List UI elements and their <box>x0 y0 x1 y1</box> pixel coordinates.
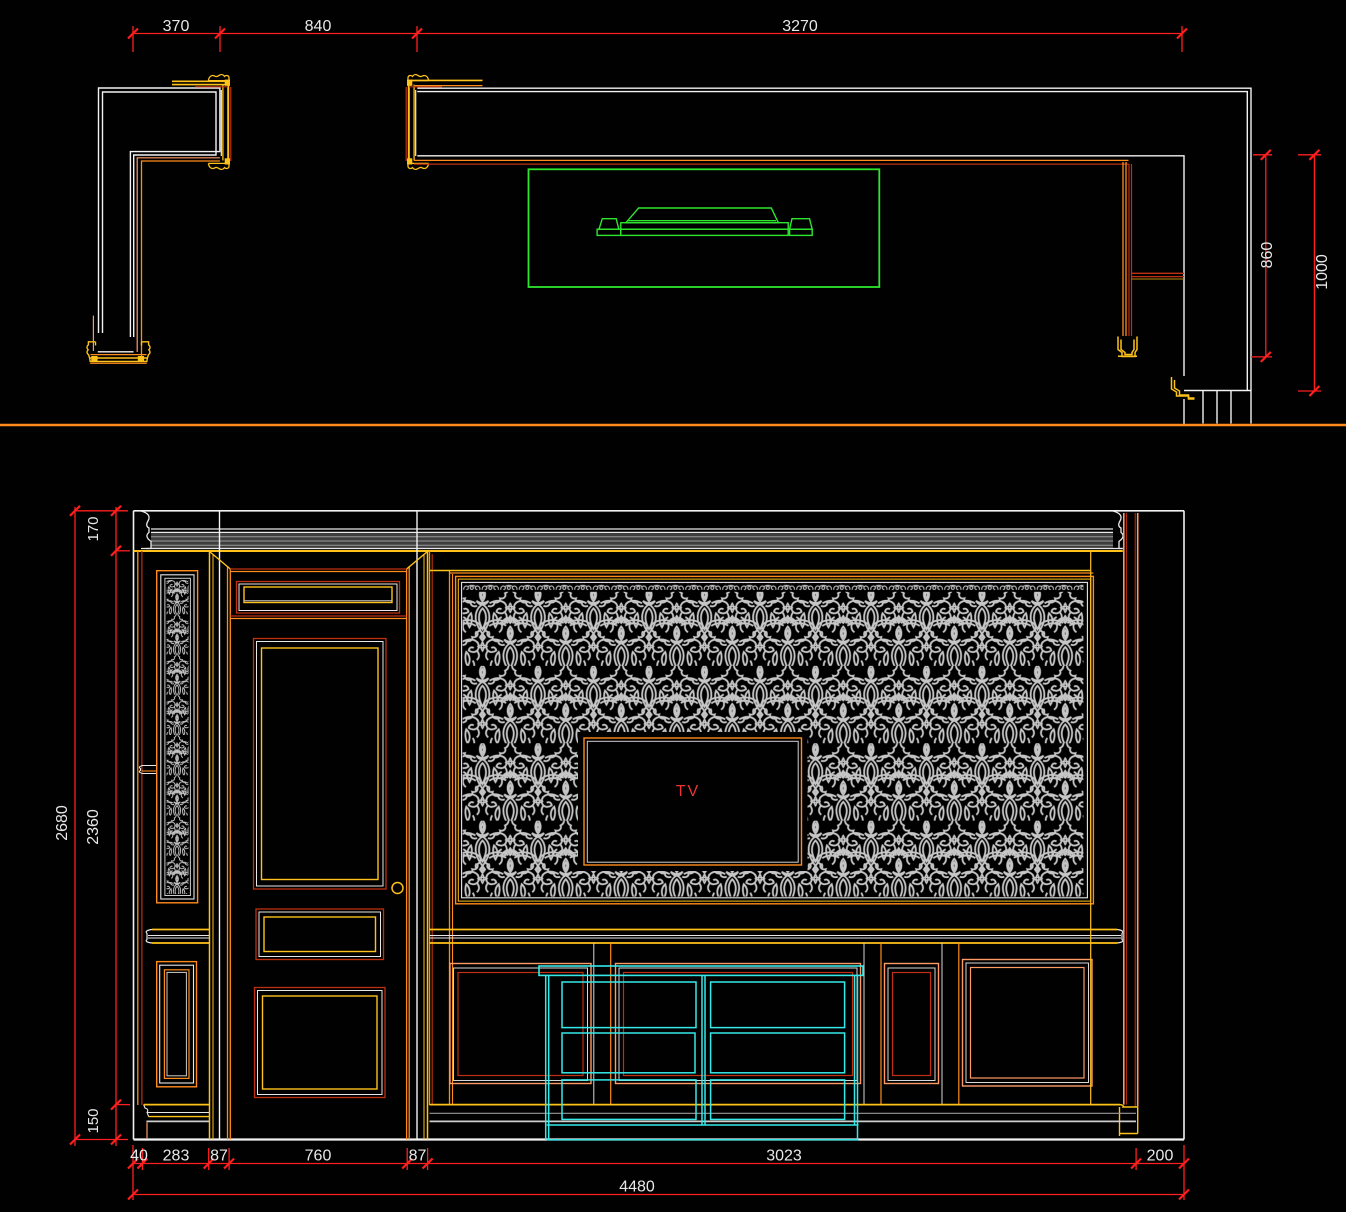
svg-text:2360: 2360 <box>85 809 102 845</box>
svg-text:87: 87 <box>210 1148 228 1165</box>
svg-text:2680: 2680 <box>54 805 71 841</box>
svg-text:200: 200 <box>1147 1148 1174 1165</box>
svg-text:283: 283 <box>163 1148 190 1165</box>
svg-text:TV: TV <box>676 783 700 800</box>
svg-text:150: 150 <box>85 1108 102 1133</box>
svg-text:3270: 3270 <box>782 18 818 35</box>
svg-text:840: 840 <box>305 18 332 35</box>
svg-text:40: 40 <box>130 1148 148 1165</box>
svg-text:3023: 3023 <box>766 1148 802 1165</box>
svg-text:760: 760 <box>305 1148 332 1165</box>
svg-text:170: 170 <box>85 516 102 541</box>
svg-text:87: 87 <box>409 1148 427 1165</box>
svg-text:4480: 4480 <box>619 1179 655 1196</box>
svg-text:860: 860 <box>1259 242 1276 269</box>
svg-text:1000: 1000 <box>1314 254 1331 290</box>
svg-text:370: 370 <box>163 18 190 35</box>
